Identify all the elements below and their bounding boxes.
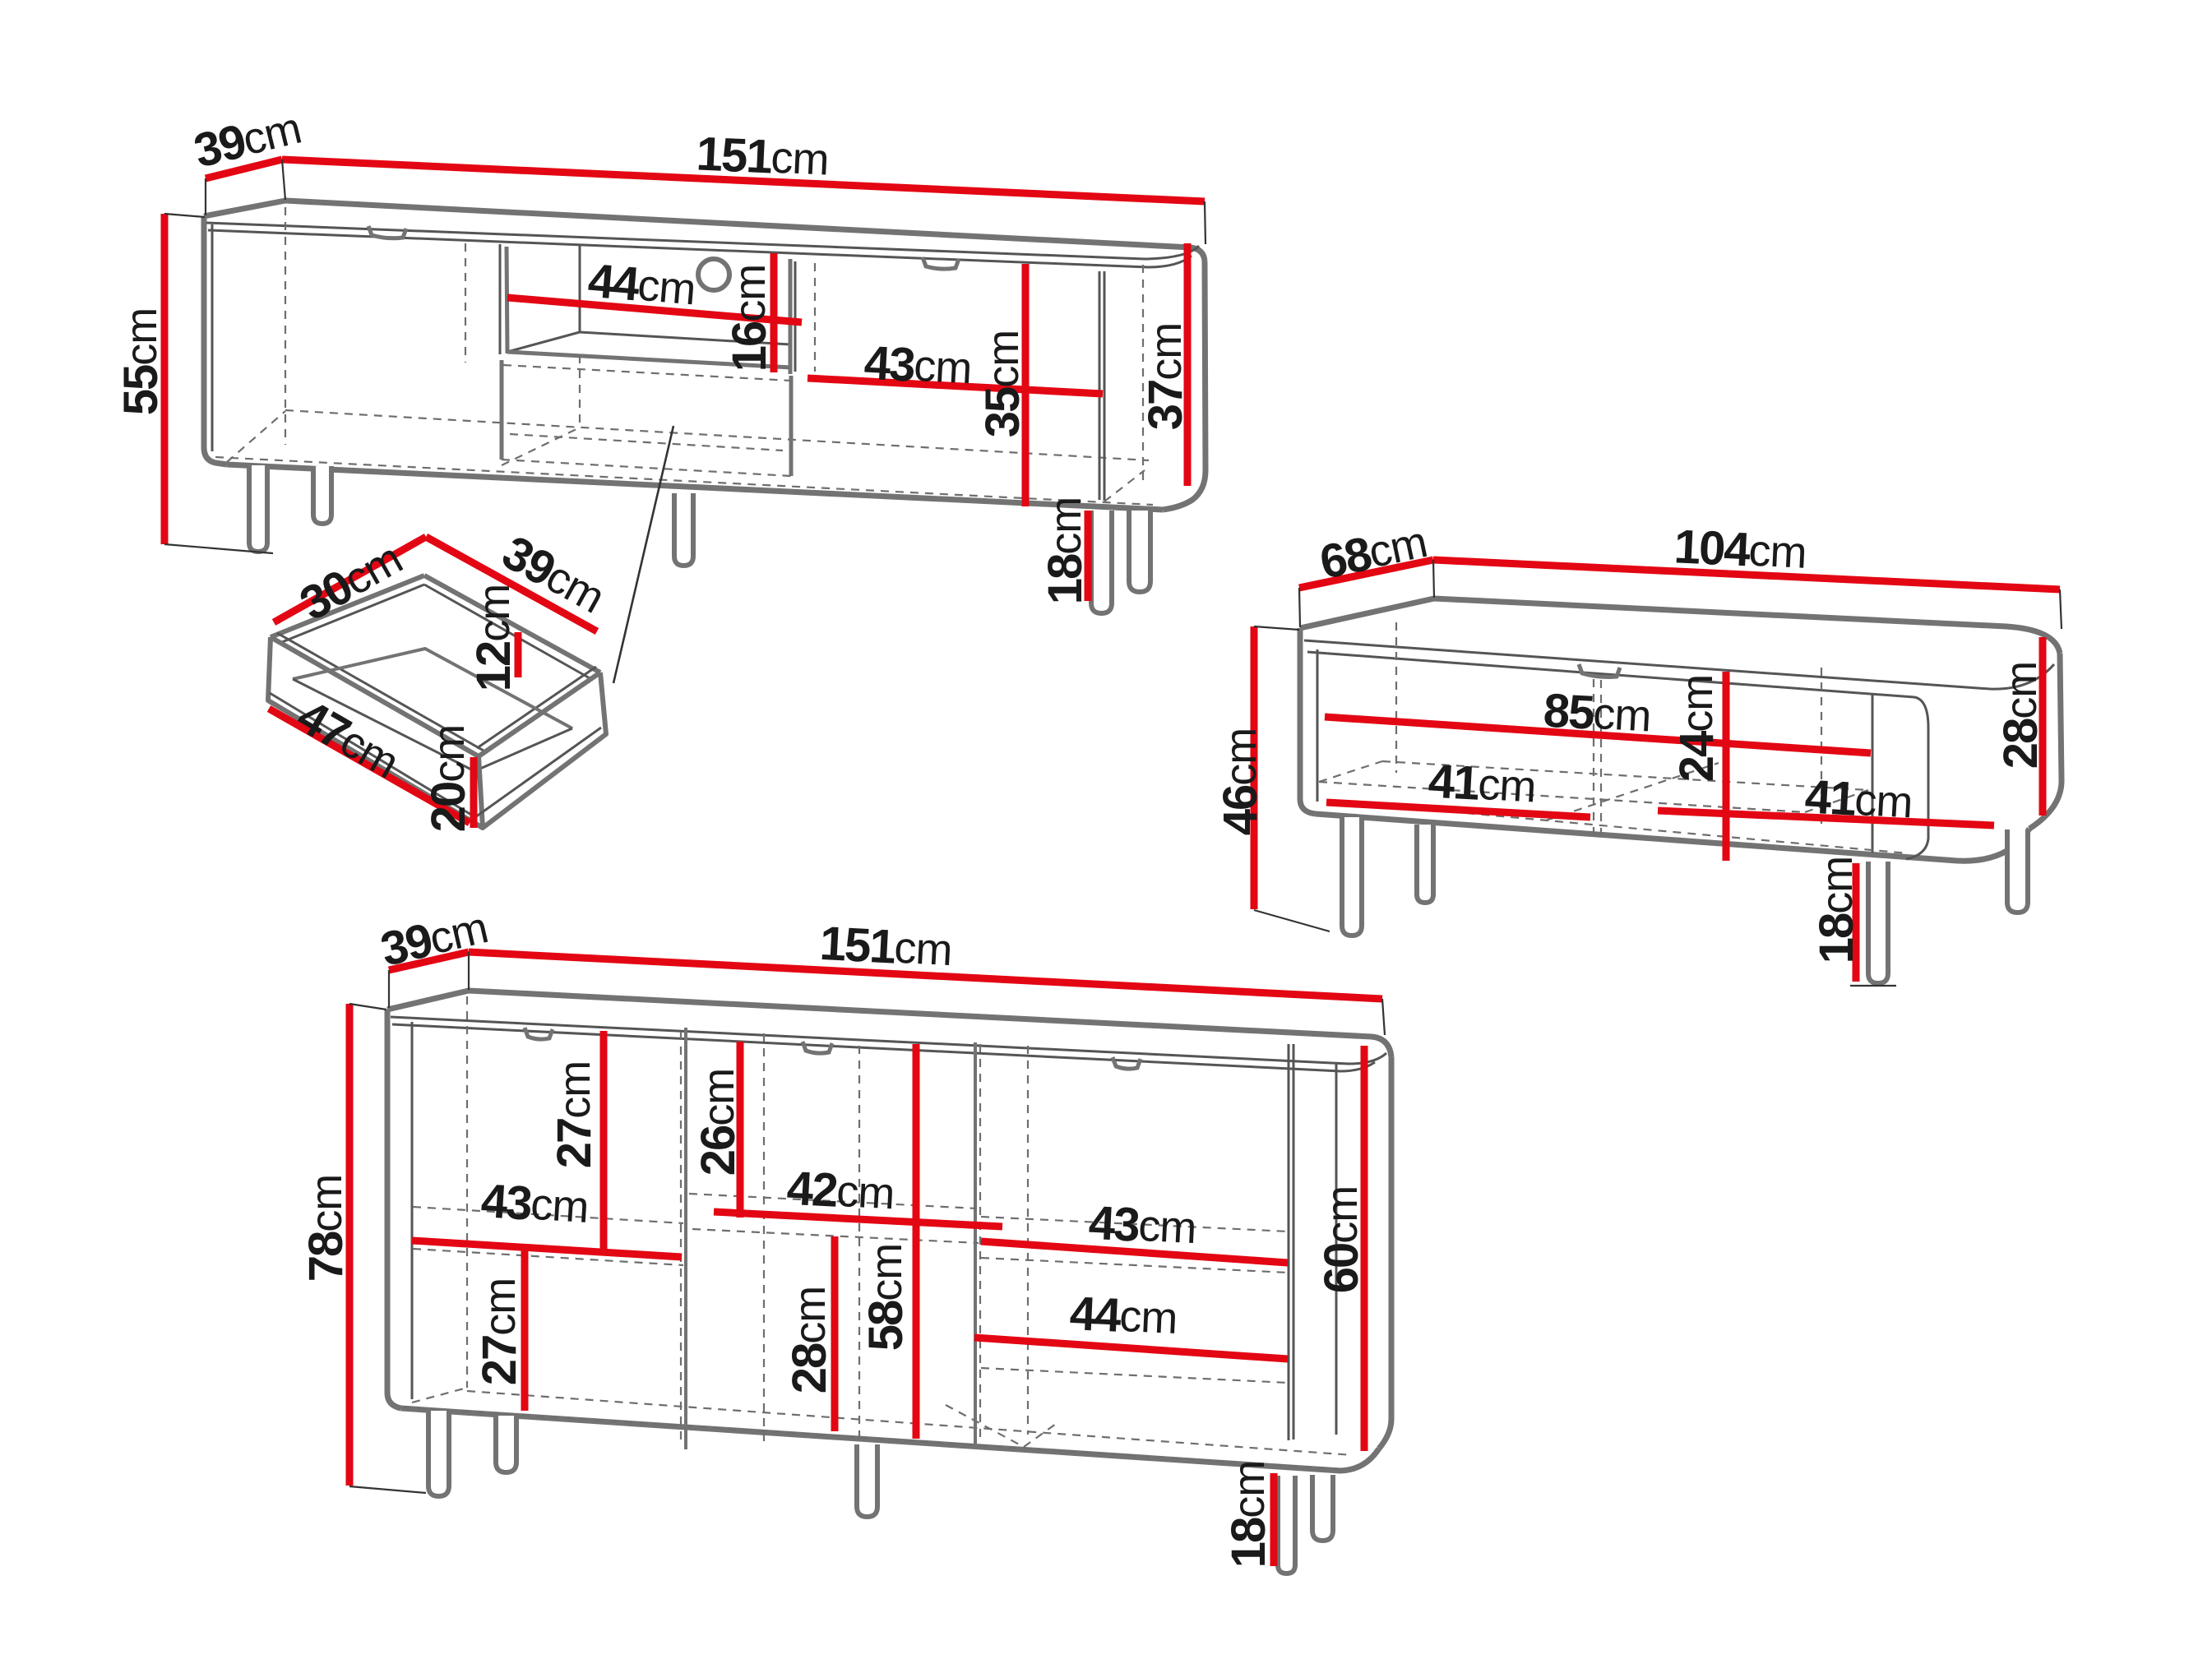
svg-text:20cm: 20cm [422, 725, 475, 833]
svg-text:26cm: 26cm [692, 1069, 745, 1176]
svg-text:42cm: 42cm [785, 1162, 895, 1221]
svg-text:46cm: 46cm [1214, 728, 1267, 836]
svg-text:24cm: 24cm [1670, 675, 1724, 783]
svg-text:60cm: 60cm [1315, 1186, 1368, 1294]
svg-text:27cm: 27cm [473, 1278, 526, 1386]
svg-text:18cm: 18cm [1039, 497, 1092, 605]
svg-text:27cm: 27cm [548, 1061, 601, 1169]
svg-text:43cm: 43cm [479, 1174, 590, 1234]
svg-text:41cm: 41cm [1427, 755, 1537, 814]
svg-text:18cm: 18cm [1810, 857, 1863, 964]
svg-text:55cm: 55cm [114, 308, 168, 416]
svg-text:37cm: 37cm [1139, 323, 1192, 431]
svg-text:28cm: 28cm [783, 1287, 836, 1394]
svg-text:28cm: 28cm [1994, 662, 2048, 769]
svg-text:85cm: 85cm [1542, 684, 1652, 743]
svg-text:58cm: 58cm [859, 1244, 913, 1352]
svg-text:43cm: 43cm [1087, 1196, 1197, 1255]
svg-text:44cm: 44cm [586, 254, 697, 317]
svg-text:41cm: 41cm [1803, 770, 1914, 829]
svg-text:12cm: 12cm [467, 585, 521, 692]
svg-text:43cm: 43cm [863, 336, 973, 395]
svg-text:104cm: 104cm [1673, 520, 1807, 580]
svg-text:16cm: 16cm [723, 265, 776, 372]
svg-text:78cm: 78cm [299, 1175, 353, 1282]
svg-text:151cm: 151cm [695, 127, 830, 187]
svg-text:18cm: 18cm [1222, 1461, 1275, 1569]
svg-text:44cm: 44cm [1069, 1287, 1178, 1345]
svg-text:35cm: 35cm [976, 330, 1030, 438]
svg-text:151cm: 151cm [818, 917, 953, 977]
